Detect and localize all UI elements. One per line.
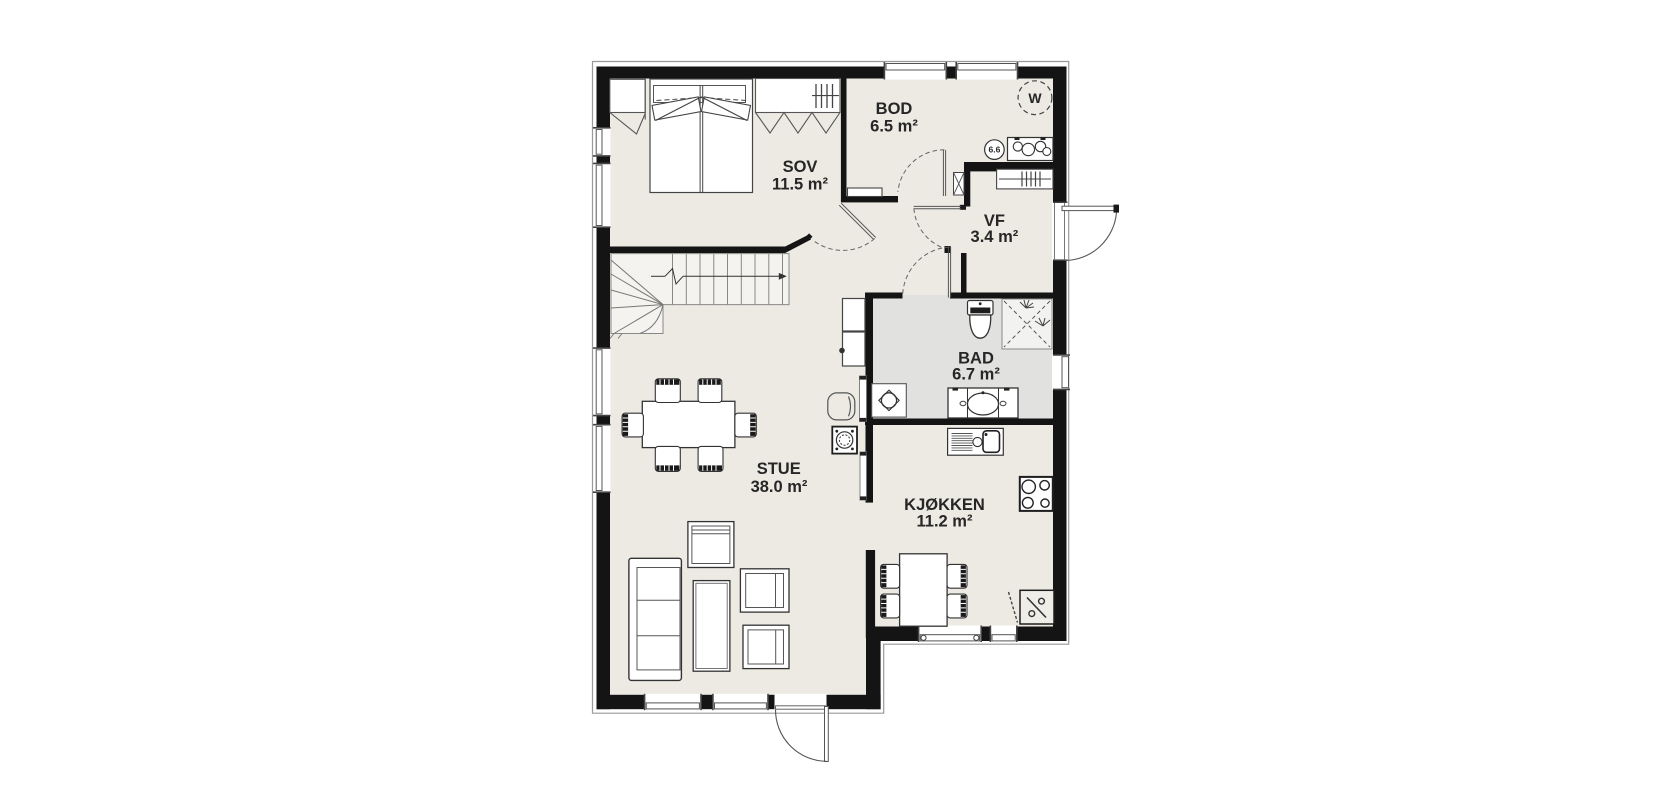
svg-text:3.4 m²: 3.4 m² bbox=[971, 228, 1019, 246]
svg-text:38.0 m²: 38.0 m² bbox=[751, 478, 808, 496]
svg-text:STUE: STUE bbox=[757, 460, 801, 478]
svg-text:6.7 m²: 6.7 m² bbox=[952, 366, 1000, 384]
svg-text:6.6: 6.6 bbox=[988, 145, 1000, 155]
svg-text:KJØKKEN: KJØKKEN bbox=[904, 496, 985, 514]
svg-text:SOV: SOV bbox=[783, 158, 818, 176]
svg-text:11.5 m²: 11.5 m² bbox=[772, 176, 828, 194]
svg-text:W: W bbox=[1028, 90, 1042, 106]
svg-text:11.2 m²: 11.2 m² bbox=[917, 513, 973, 531]
svg-text:6.5 m²: 6.5 m² bbox=[870, 118, 918, 136]
svg-text:BOD: BOD bbox=[876, 100, 913, 118]
